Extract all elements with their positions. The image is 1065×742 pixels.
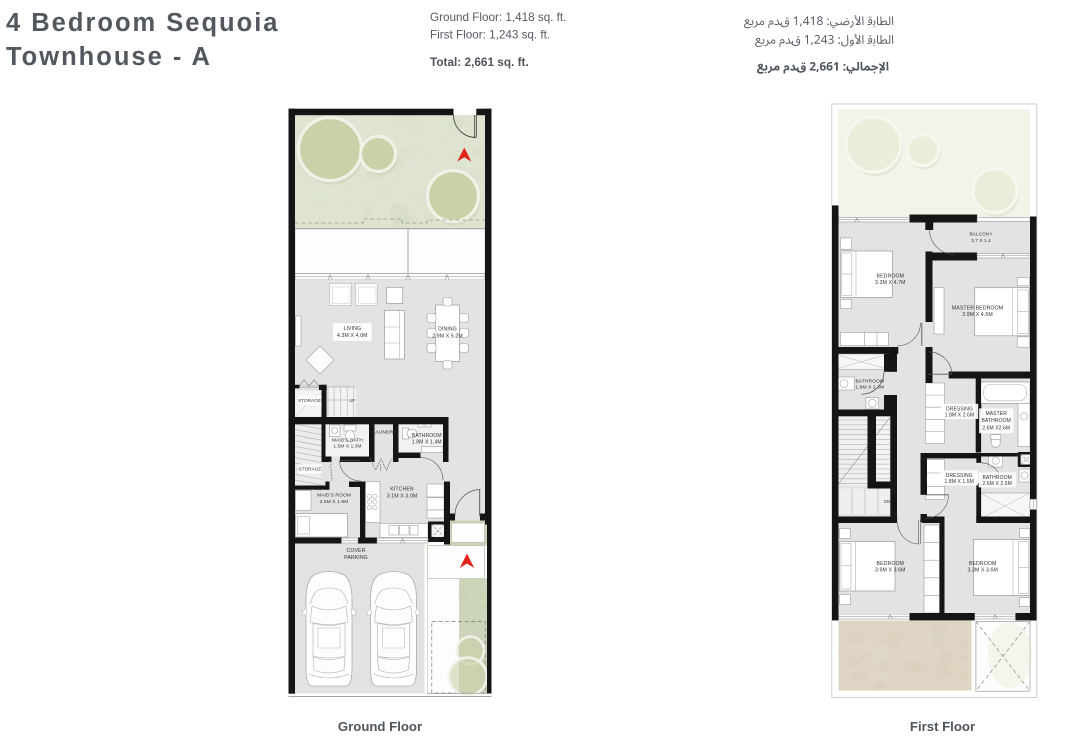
svg-text:3.9M X 3.6M: 3.9M X 3.6M	[875, 567, 906, 573]
svg-text:First Floor: First Floor	[910, 719, 975, 734]
svg-text:DN: DN	[884, 499, 890, 504]
svg-text:1.5M X 1.3M: 1.5M X 1.3M	[333, 444, 361, 450]
svg-text:3.1M X 3.0M: 3.1M X 3.0M	[387, 494, 418, 500]
svg-text:Ground Floor: 1,418 sq. ft.: Ground Floor: 1,418 sq. ft.	[430, 11, 566, 24]
svg-text:BATHROOM: BATHROOM	[412, 433, 442, 439]
svg-text:COVER: COVER	[347, 548, 366, 554]
svg-text:3.7 X 1.4: 3.7 X 1.4	[971, 238, 991, 243]
svg-text:LIVING: LIVING	[343, 326, 361, 332]
svg-text:BALCONY: BALCONY	[969, 232, 993, 237]
svg-text:MASTER BEDROOM: MASTER BEDROOM	[952, 305, 1003, 311]
svg-text:1.8M X 2.6M: 1.8M X 2.6M	[945, 412, 974, 418]
svg-text:MAID'S BATH: MAID'S BATH	[332, 438, 363, 444]
svg-text:2.6M X2.6M: 2.6M X2.6M	[982, 425, 1010, 431]
svg-text:Townhouse - A: Townhouse - A	[6, 43, 212, 71]
svg-text:BATHROOM: BATHROOM	[855, 379, 884, 385]
svg-text:STORAGE: STORAGE	[298, 398, 321, 403]
svg-text:BEDROOM: BEDROOM	[969, 561, 997, 567]
svg-text:Ground Floor: Ground Floor	[338, 719, 422, 734]
svg-text:3.9M X 4.5M: 3.9M X 4.5M	[962, 312, 993, 318]
svg-text:4 Bedroom Sequoia: 4 Bedroom Sequoia	[6, 9, 279, 37]
svg-text:DINING: DINING	[438, 327, 457, 333]
svg-text:1.8M X 1.5M: 1.8M X 1.5M	[944, 479, 973, 485]
svg-text:MASTER: MASTER	[985, 411, 1007, 417]
svg-text:BEDROOM: BEDROOM	[877, 274, 905, 280]
svg-text:2.9M X 5.2M: 2.9M X 5.2M	[432, 334, 463, 340]
svg-text:3.3M X 4.7M: 3.3M X 4.7M	[875, 280, 906, 286]
svg-text:MAID'S ROOM: MAID'S ROOM	[317, 493, 351, 499]
svg-text:3.3M X 3.6M: 3.3M X 3.6M	[967, 567, 998, 573]
svg-text:UP: UP	[349, 398, 355, 403]
svg-text:PARKING: PARKING	[344, 555, 368, 561]
svg-text:KITCHEN: KITCHEN	[390, 487, 414, 493]
svg-text:2.6M X 2.5M: 2.6M X 2.5M	[982, 481, 1011, 487]
svg-text:4.3M X 4.0M: 4.3M X 4.0M	[337, 333, 368, 339]
svg-text:BATHROOM: BATHROOM	[982, 418, 1011, 424]
svg-text:STORAGE: STORAGE	[298, 467, 321, 472]
svg-text:1.8M X 1.4M: 1.8M X 1.4M	[412, 439, 442, 445]
svg-text:1.9M X 2.3M: 1.9M X 2.3M	[855, 385, 884, 391]
svg-text:2.5M X 1.9M: 2.5M X 1.9M	[320, 499, 349, 505]
svg-text:Total: 2,661 sq. ft.: Total: 2,661 sq. ft.	[430, 55, 529, 69]
svg-text:BEDROOM: BEDROOM	[877, 561, 905, 567]
svg-text:LAUNDRY: LAUNDRY	[373, 429, 398, 435]
svg-text:First Floor: 1,243 sq. ft.: First Floor: 1,243 sq. ft.	[430, 29, 550, 42]
